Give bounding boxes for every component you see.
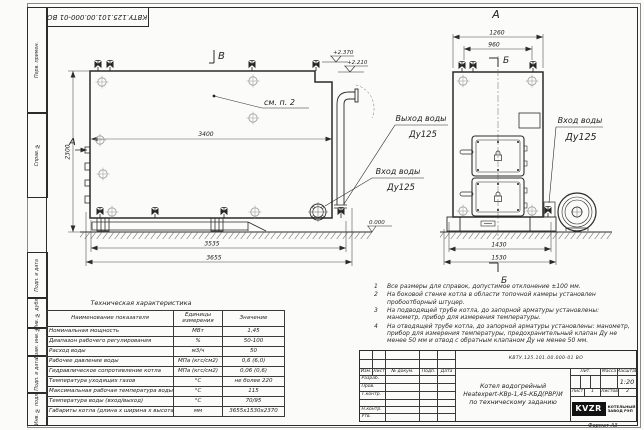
table-row: Температура воды (вход/выход) °С 70/95 xyxy=(47,397,285,407)
tb-lit-cell xyxy=(571,376,581,389)
tech-units: °С xyxy=(174,377,223,387)
tb-massa-label: Масса xyxy=(601,369,618,376)
tech-units: % xyxy=(174,337,223,347)
tb-empty-cell xyxy=(420,392,438,400)
note-number: 4 xyxy=(374,323,387,345)
tech-col-units: Единицы измерения xyxy=(174,311,223,327)
tb-empty-cell xyxy=(438,400,456,407)
product-name-line3: по техническому заданию xyxy=(469,400,557,406)
note-number: 2 xyxy=(374,291,387,306)
list-item: 3 На подводящей трубе котла, до запорной… xyxy=(374,307,634,322)
tb-col-izm: Изм. xyxy=(360,369,373,376)
doc-number-stamp-text: КВТУ.125.101.00.000-01 ВО xyxy=(47,13,147,21)
tb-lit-label: Лит. xyxy=(571,369,601,376)
margin-box-podp-data-2: Подп. и дата xyxy=(27,355,48,394)
tb-empty-cell xyxy=(373,351,386,360)
tb-empty-cell xyxy=(420,407,438,414)
title-block: Изм. Лист № докум. Подп. Дата Разраб. Пр… xyxy=(359,350,637,422)
tech-name: Диапазон рабочего регулирования xyxy=(47,337,174,347)
list-item: 2 На боковой стенке котла в области топо… xyxy=(374,291,634,306)
note-text: На отводящей трубе котла, до запорной ар… xyxy=(387,323,634,345)
tech-units: °С xyxy=(174,397,223,407)
note-text: На подводящей трубе котла, до запорной а… xyxy=(387,307,634,322)
tb-masshtab-label: Масштаб xyxy=(618,369,636,376)
margin-box-sprav: Справ. № xyxy=(27,112,48,198)
table-row: Рабочее давление воды МПа (кгс/см2) 0,6 … xyxy=(47,357,285,367)
tb-empty-cell xyxy=(360,360,373,369)
tech-characteristics: Техническая характеристика Наименование … xyxy=(46,299,284,417)
tb-empty-cell xyxy=(420,384,438,392)
tb-empty-cell xyxy=(420,414,438,421)
tb-col-list: Лист xyxy=(373,369,386,376)
tb-company-cell: KVZR КОТЕЛЬНЫЙ ЗАВОД РЭП xyxy=(571,397,636,421)
tb-empty-cell xyxy=(360,351,373,360)
tech-units: МПа (кгс/см2) xyxy=(174,357,223,367)
tb-product-name: Котел водогрейный Heatexpert-КВр-1,45-КБ… xyxy=(456,369,571,421)
tech-units: МВт xyxy=(174,327,223,337)
tech-value: 50 xyxy=(223,347,285,357)
tb-sheet-num: 1 xyxy=(585,389,601,397)
tech-value: 1,45 xyxy=(223,327,285,337)
table-row: Температура уходящих газов °С не более 2… xyxy=(47,377,285,387)
margin-box-inv-dubl: Инв. № дубл. xyxy=(27,297,48,329)
note-number: 1 xyxy=(374,283,387,290)
kvzr-logo: KVZR xyxy=(572,402,606,416)
margin-box-inv-podl: Инв. № подл. xyxy=(27,392,48,426)
tech-col-value: Значение xyxy=(223,311,285,327)
tech-table-title: Техническая характеристика xyxy=(56,299,226,307)
tb-row-prov: Пров. xyxy=(360,384,386,392)
tb-lit-cell xyxy=(581,376,591,389)
tech-units: мм xyxy=(174,407,223,417)
tb-row-razrab: Разраб. xyxy=(360,376,386,384)
tech-value: 0,06 (0,6) xyxy=(223,367,285,377)
tb-empty-cell xyxy=(438,392,456,400)
tech-name: Рабочее давление воды xyxy=(47,357,174,367)
tb-row-nkontr: Н.контр. xyxy=(360,407,386,414)
tb-empty-cell xyxy=(386,351,420,360)
tb-col-podp: Подп. xyxy=(420,369,438,376)
margin-box-podp-data-1: Подп. и дата xyxy=(27,252,48,299)
tech-value: 115 xyxy=(223,387,285,397)
tech-units: МПа (кгс/см2) xyxy=(174,367,223,377)
tb-sheets-label: Листов xyxy=(601,389,619,397)
tech-col-name: Наименование показателя xyxy=(47,311,174,327)
tech-name: Гидравлическое сопротивление котла xyxy=(47,367,174,377)
tb-empty-cell xyxy=(386,392,420,400)
tech-name: Расход воды xyxy=(47,347,174,357)
margin-box-label: Подп. и дата xyxy=(35,358,40,391)
margin-box-label: Перв. примен. xyxy=(35,42,40,78)
tech-name: Номинальная мощность xyxy=(47,327,174,337)
margin-box-label: Взам. инв. № xyxy=(35,326,40,359)
tb-doc-number: КВТУ.125.101.00.000-01 ВО xyxy=(456,351,636,369)
tb-empty-cell xyxy=(420,376,438,384)
tb-massa-cell xyxy=(601,376,618,389)
margin-box-label: Инв. № подл. xyxy=(35,392,40,425)
margin-box-label: Справ. № xyxy=(35,143,40,166)
doc-number-stamp: КВТУ.125.101.00.000-01 ВО xyxy=(46,7,149,27)
note-number: 3 xyxy=(374,307,387,322)
table-row: Габариты котла (длина х ширина х высота)… xyxy=(47,407,285,417)
format-note: Формат А3 xyxy=(588,423,618,429)
tech-units: °С xyxy=(174,387,223,397)
note-text: Все размеры для справок, допустимое откл… xyxy=(387,283,634,290)
list-item: 4 На отводящей трубе котла, до запорной … xyxy=(374,323,634,345)
tech-name: Габариты котла (длина х ширина х высота) xyxy=(47,407,174,417)
tech-units: м3/ч xyxy=(174,347,223,357)
margin-box-vzam-inv: Взам. инв. № xyxy=(27,327,48,357)
table-row: Расход воды м3/ч 50 xyxy=(47,347,285,357)
table-row: Максимальная рабочая температура воды °С… xyxy=(47,387,285,397)
tb-empty-cell xyxy=(373,360,386,369)
list-item: 1 Все размеры для справок, допустимое от… xyxy=(374,283,634,290)
tb-sheet-label: Лист xyxy=(571,389,585,397)
tech-name: Температура уходящих газов xyxy=(47,377,174,387)
tech-name: Температура воды (вход/выход) xyxy=(47,397,174,407)
tb-empty-cell xyxy=(420,400,438,407)
table-row: Диапазон рабочего регулирования % 50-100 xyxy=(47,337,285,347)
tb-col-data: Дата xyxy=(438,369,456,376)
tb-empty-cell xyxy=(386,414,420,421)
tb-empty-cell xyxy=(386,360,420,369)
tb-col-doc: № докум. xyxy=(386,369,420,376)
tb-empty-cell xyxy=(438,351,456,360)
tb-empty-cell xyxy=(386,407,420,414)
logo-subtitle-line2: ЗАВОД РЭП xyxy=(608,409,633,413)
tb-sheets-num: 2 xyxy=(619,389,636,397)
tb-empty-cell xyxy=(438,407,456,414)
margin-box-perv-primen: Перв. примен. xyxy=(27,7,48,114)
tb-empty-cell xyxy=(438,376,456,384)
tech-value: 50-100 xyxy=(223,337,285,347)
tb-empty-cell xyxy=(420,360,438,369)
tech-name: Максимальная рабочая температура воды xyxy=(47,387,174,397)
product-name-line1: Котел водогрейный xyxy=(480,384,546,390)
tb-empty-cell xyxy=(438,360,456,369)
tb-row-utv: Утв. xyxy=(360,414,386,421)
tech-table: Наименование показателя Единицы измерени… xyxy=(46,310,285,417)
drawing-sheet: В А см. п. 2 3400 2300 3535 3655 +2.370 … xyxy=(0,0,644,430)
tb-lit-cell xyxy=(591,376,601,389)
tb-empty-cell xyxy=(438,384,456,392)
margin-box-label: Инв. № дубл. xyxy=(35,297,40,330)
note-text: На боковой стенке котла в области топочн… xyxy=(387,291,634,306)
product-name-line2: Heatexpert-КВр-1,45-КБД(РВР)И xyxy=(463,392,562,398)
tech-value: не более 220 xyxy=(223,377,285,387)
tech-value: 70/95 xyxy=(223,397,285,407)
tb-empty-cell xyxy=(420,351,438,360)
tb-row-tkontr: Т.контр. xyxy=(360,392,386,400)
tb-empty-cell xyxy=(386,400,420,407)
tb-scale-value: 1:20 xyxy=(618,376,636,389)
tech-value: 3655х1530х2370 xyxy=(223,407,285,417)
tb-empty-cell xyxy=(438,414,456,421)
table-row: Номинальная мощность МВт 1,45 xyxy=(47,327,285,337)
tb-empty-cell xyxy=(386,376,420,384)
table-row: Гидравлическое сопротивление котла МПа (… xyxy=(47,367,285,377)
notes-list: 1 Все размеры для справок, допустимое от… xyxy=(374,283,634,346)
tb-empty-cell xyxy=(386,384,420,392)
margin-box-label: Подп. и дата xyxy=(35,259,40,292)
tb-empty-cell xyxy=(360,400,386,407)
tech-value: 0,6 (6,0) xyxy=(223,357,285,367)
